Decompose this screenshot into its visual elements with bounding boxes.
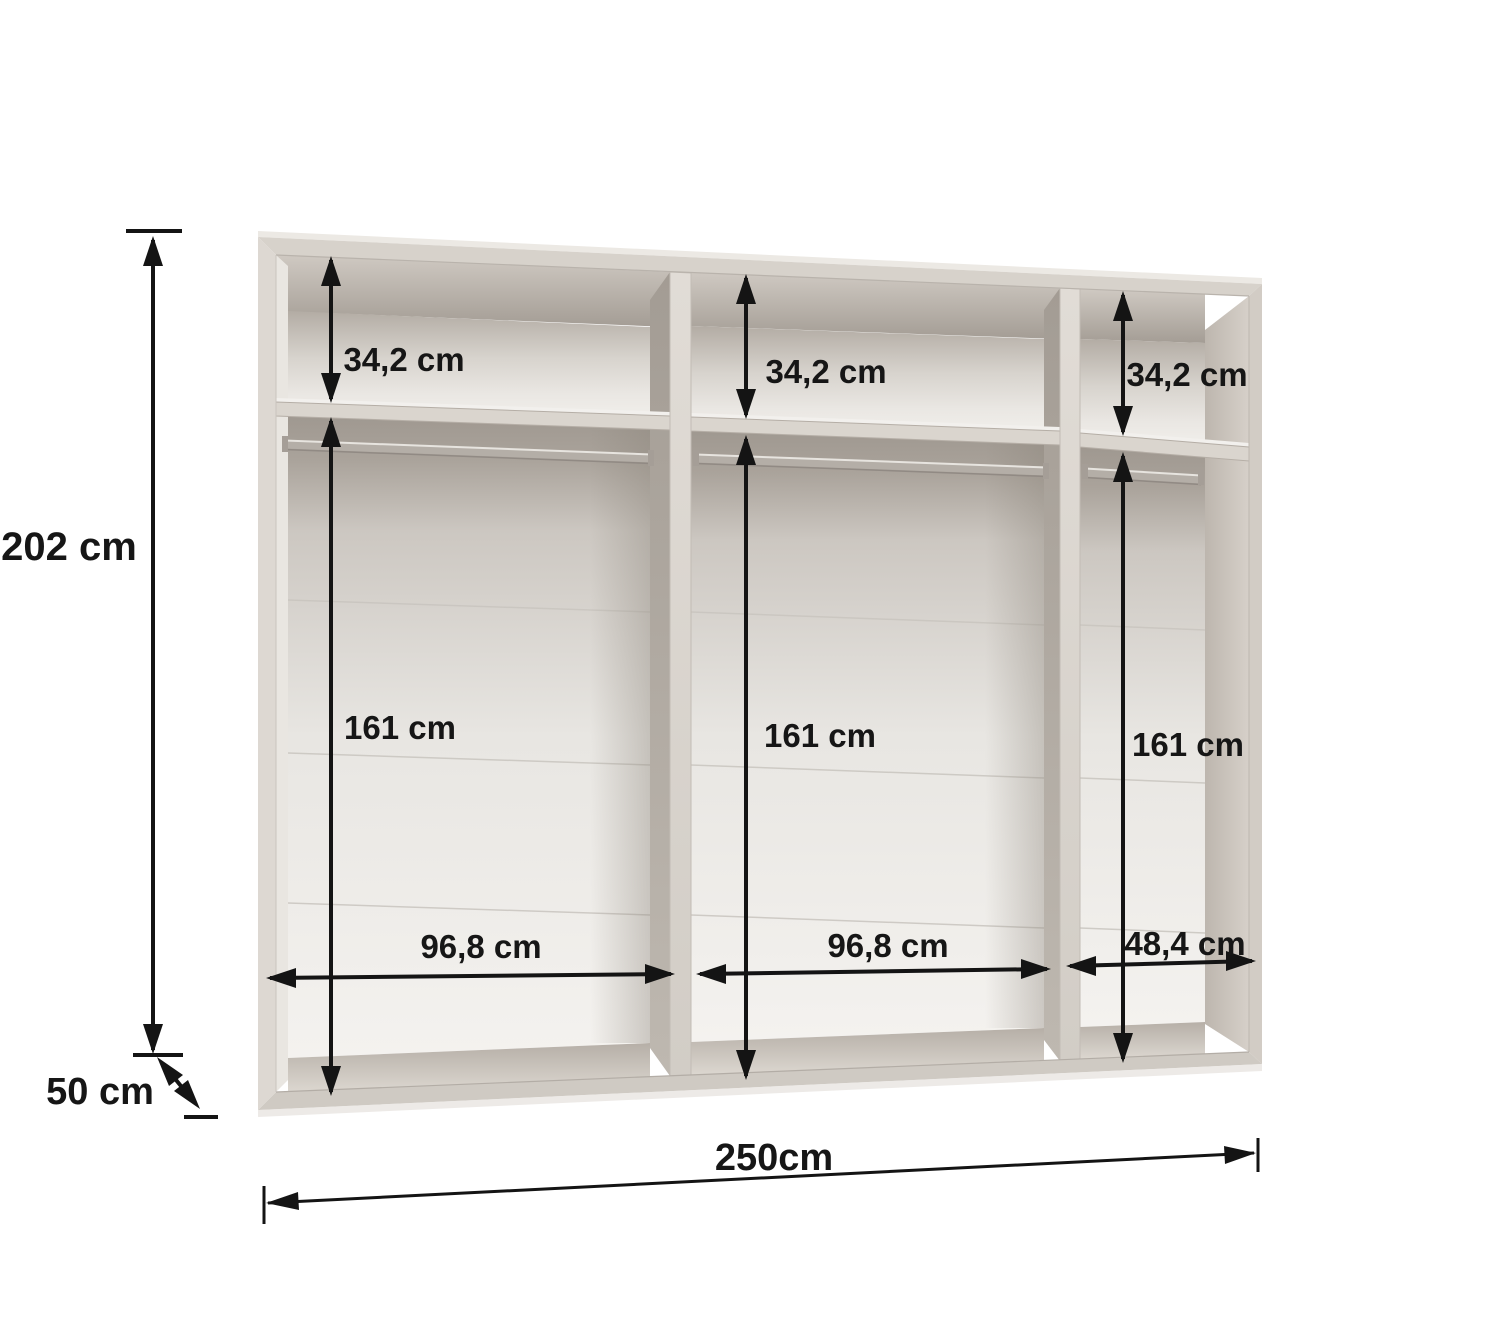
section-3-width-label: 48,4 cm bbox=[1124, 925, 1245, 962]
rail-bracket bbox=[648, 450, 654, 466]
rail-bracket bbox=[1043, 463, 1049, 479]
section-3-hanging-height-label: 161 cm bbox=[1132, 726, 1244, 763]
diagram-canvas: 202 cm 50 cm 250cm 34,2 cm 161 cm 96,8 c… bbox=[0, 0, 1500, 1327]
section-1-width-label: 96,8 cm bbox=[420, 928, 541, 965]
height-dimension-label: 202 cm bbox=[1, 525, 137, 569]
depth-dimension-label: 50 cm bbox=[46, 1071, 154, 1113]
section-3-floor bbox=[1080, 1022, 1205, 1059]
partition-1 bbox=[670, 272, 691, 1076]
rail-bracket bbox=[1198, 470, 1204, 485]
total-width-dimension-label: 250cm bbox=[715, 1137, 833, 1179]
section-1-upper-back-panel bbox=[288, 311, 650, 415]
section-3-ceiling bbox=[1080, 289, 1205, 343]
section-1-hanging-height-label: 161 cm bbox=[344, 709, 456, 746]
section-2-hanging-height-label: 161 cm bbox=[764, 717, 876, 754]
rail-bracket bbox=[1082, 464, 1088, 479]
partition-2 bbox=[1060, 288, 1080, 1061]
partition-1-shadow bbox=[590, 430, 650, 1043]
partition-1-side-face bbox=[650, 272, 670, 1076]
section-1-top-height-label: 34,2 cm bbox=[343, 341, 464, 378]
rail-bracket bbox=[282, 436, 288, 452]
section-2-width-label: 96,8 cm bbox=[827, 927, 948, 964]
section-3-top-height-label: 34,2 cm bbox=[1126, 356, 1247, 393]
partition-2-shadow bbox=[985, 444, 1044, 1028]
rail-bracket bbox=[693, 450, 699, 466]
wardrobe-dimension-diagram: 202 cm 50 cm 250cm 34,2 cm 161 cm 96,8 c… bbox=[0, 0, 1500, 1327]
section-2-top-height-label: 34,2 cm bbox=[765, 353, 886, 390]
partition-2-side-face bbox=[1044, 288, 1060, 1061]
right-stile bbox=[1249, 284, 1262, 1064]
left-wall-inner-face bbox=[276, 255, 288, 1092]
